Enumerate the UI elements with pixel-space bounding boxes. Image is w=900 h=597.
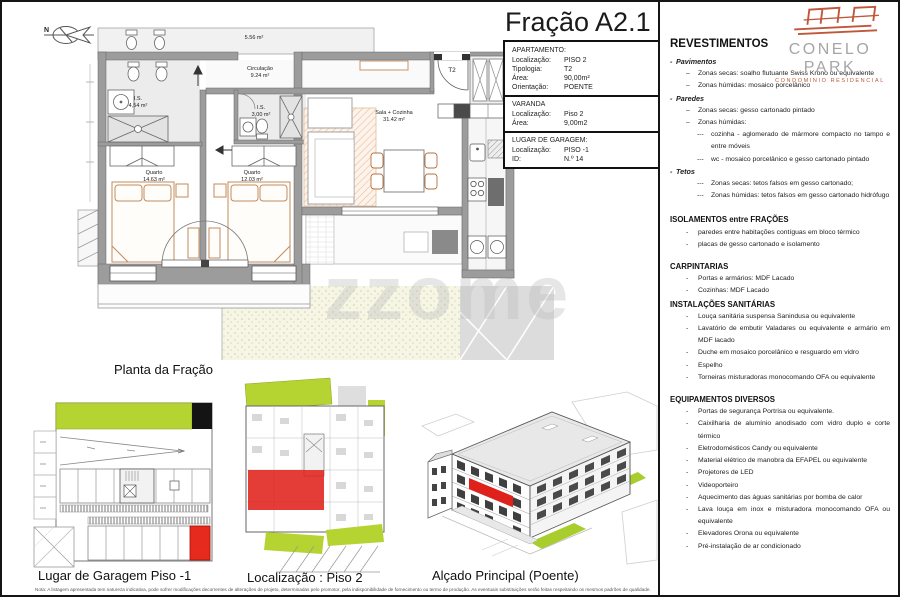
spec-item: -Material elétrico de manobra da EFAPEL … — [670, 455, 890, 467]
specs-panel: CONELO PARK CONDOMINIO RESIDENCIAL REVES… — [660, 2, 900, 597]
spec-item: ---Zonas húmidas: tetos falsos em gesso … — [670, 190, 890, 202]
spec-item: -Duche em mosaico porcelânico e resguard… — [670, 347, 890, 359]
spec-item: -Cozinhas: MDF Lacado — [670, 285, 890, 297]
spec-item: –Zonas húmidas: — [670, 117, 890, 129]
rule — [505, 167, 658, 169]
spec-item: -Elevadores Orona ou equivalente — [670, 528, 890, 540]
brand-tagline: CONDOMINIO RESIDENCIAL — [764, 78, 896, 84]
spec-item: -Lava louça em inox e misturadora monoco… — [670, 504, 890, 528]
location-plan-figure — [245, 378, 385, 572]
living-room-label: Sala + Cozinha31.42 m² — [375, 110, 412, 123]
highlighted-unit — [248, 470, 324, 510]
spec-subhead: -Paredes — [670, 93, 890, 105]
brand-name: CONELO PARK — [764, 41, 896, 77]
spec-item: -Videoporteiro — [670, 480, 890, 492]
highlighted-parking-space — [190, 526, 210, 560]
page-title: Fração A2.1 — [505, 7, 651, 38]
spec-item: -Portas e armários: MDF Lacado — [670, 273, 890, 285]
plan-caption: Planta da Fração — [114, 362, 213, 377]
spec-item: -Torneiras misturadoras monocomando OFA … — [670, 372, 890, 384]
bedroom2-furniture — [209, 182, 290, 262]
hall-area-label: 5.56 m² — [245, 35, 264, 42]
brand-logo: CONELO PARK CONDOMINIO RESIDENCIAL — [764, 4, 896, 84]
north-compass-icon — [44, 27, 94, 44]
info-row: Orientação:POENTE — [512, 83, 658, 92]
info-row: Localização:Piso 2 — [512, 110, 658, 119]
section-heading: INSTALAÇÕES SANITÁRIAS — [670, 299, 890, 311]
spec-item: -Projetores de LED — [670, 467, 890, 479]
location-caption: Localização : Piso 2 — [247, 570, 363, 585]
section-heading: CARPINTARIAS — [670, 261, 890, 273]
rule — [505, 131, 658, 133]
spec-item: -Lavatório de embutir Valadares ou equiv… — [670, 323, 890, 347]
dining-set — [371, 150, 437, 192]
info-row: Tipologia:T2 — [512, 65, 658, 74]
spec-item: -Eletrodomésticos Candy ou equivalente — [670, 443, 890, 455]
spec-subhead: -Tetos — [670, 166, 890, 178]
spec-item: -paredes entre habitações contíguas em b… — [670, 227, 890, 239]
balcony-heading: VARANDA — [512, 100, 658, 109]
spec-item: ---cozinha - aglomerado de mármore compa… — [670, 129, 890, 153]
spec-sheet: zzome N 5.56 m² Circulação9.24 m² I.S.4,… — [0, 0, 900, 597]
spec-item: ---Zonas secas: tetos falsos em gesso ca… — [670, 178, 890, 190]
elevation-3d-figure — [422, 392, 657, 564]
bathroom2-label: I.S.3,00 m² — [252, 105, 271, 118]
spec-item: -Caixilharia de alumínio anodisado com v… — [670, 418, 890, 442]
garage-plan-figure — [34, 403, 212, 567]
info-row: ID:N.º 14 — [512, 155, 658, 164]
building-sketch-icon — [764, 4, 896, 36]
bedroom1-label: Quarto14.63 m² — [143, 170, 165, 183]
info-row: Área:90,00m² — [512, 74, 658, 83]
bedroom2-label: Quarto12.03 m² — [241, 170, 263, 183]
spec-item: -Espelho — [670, 360, 890, 372]
info-row: Área:9,00m2 — [512, 119, 658, 128]
spec-item: -Louça sanitária suspensa Sanindusa ou e… — [670, 311, 890, 323]
spec-item: -placas de gesso cartonado e isolamento — [670, 239, 890, 251]
footnote: Nota: A listagem apresentada tem naturez… — [35, 587, 651, 592]
section-heading: EQUIPAMENTOS DIVERSOS — [670, 394, 890, 406]
info-row: Localização:PISO -1 — [512, 146, 658, 155]
terrace — [306, 215, 462, 264]
spec-item: -Aquecimento das águas sanitárias por bo… — [670, 492, 890, 504]
spec-item: –Zonas secas: gesso cartonado pintado — [670, 105, 890, 117]
rule — [505, 95, 658, 97]
elevation-caption: Alçado Principal (Poente) — [432, 568, 579, 583]
garage-caption: Lugar de Garagem Piso -1 — [38, 568, 191, 583]
left-margin-details — [78, 64, 98, 266]
apartment-heading: APARTAMENTO: — [512, 46, 658, 55]
section-heading: ISOLAMENTOS entre FRAÇÕES — [670, 214, 890, 226]
entry-tag-label: T2 — [448, 68, 456, 75]
bathroom1-label: I.S.4,54 m² — [129, 96, 148, 109]
spec-item: -Portas de segurança Portrisa ou equival… — [670, 406, 890, 418]
circulation-label: Circulação9.24 m² — [247, 66, 273, 79]
bedroom1-furniture — [112, 182, 199, 262]
info-row: Localização:PISO 2 — [512, 56, 658, 65]
unit-info-box: APARTAMENTO: Localização:PISO 2 Tipologi… — [503, 40, 658, 169]
garage-heading: LUGAR DE GARAGEM: — [512, 136, 658, 145]
spec-item: ---wc - mosaico porcelânico e gesso cart… — [670, 154, 890, 166]
stairwell — [470, 56, 506, 104]
north-label: N — [44, 28, 49, 35]
spec-item: -Pré-instalação de ar condicionado — [670, 541, 890, 553]
